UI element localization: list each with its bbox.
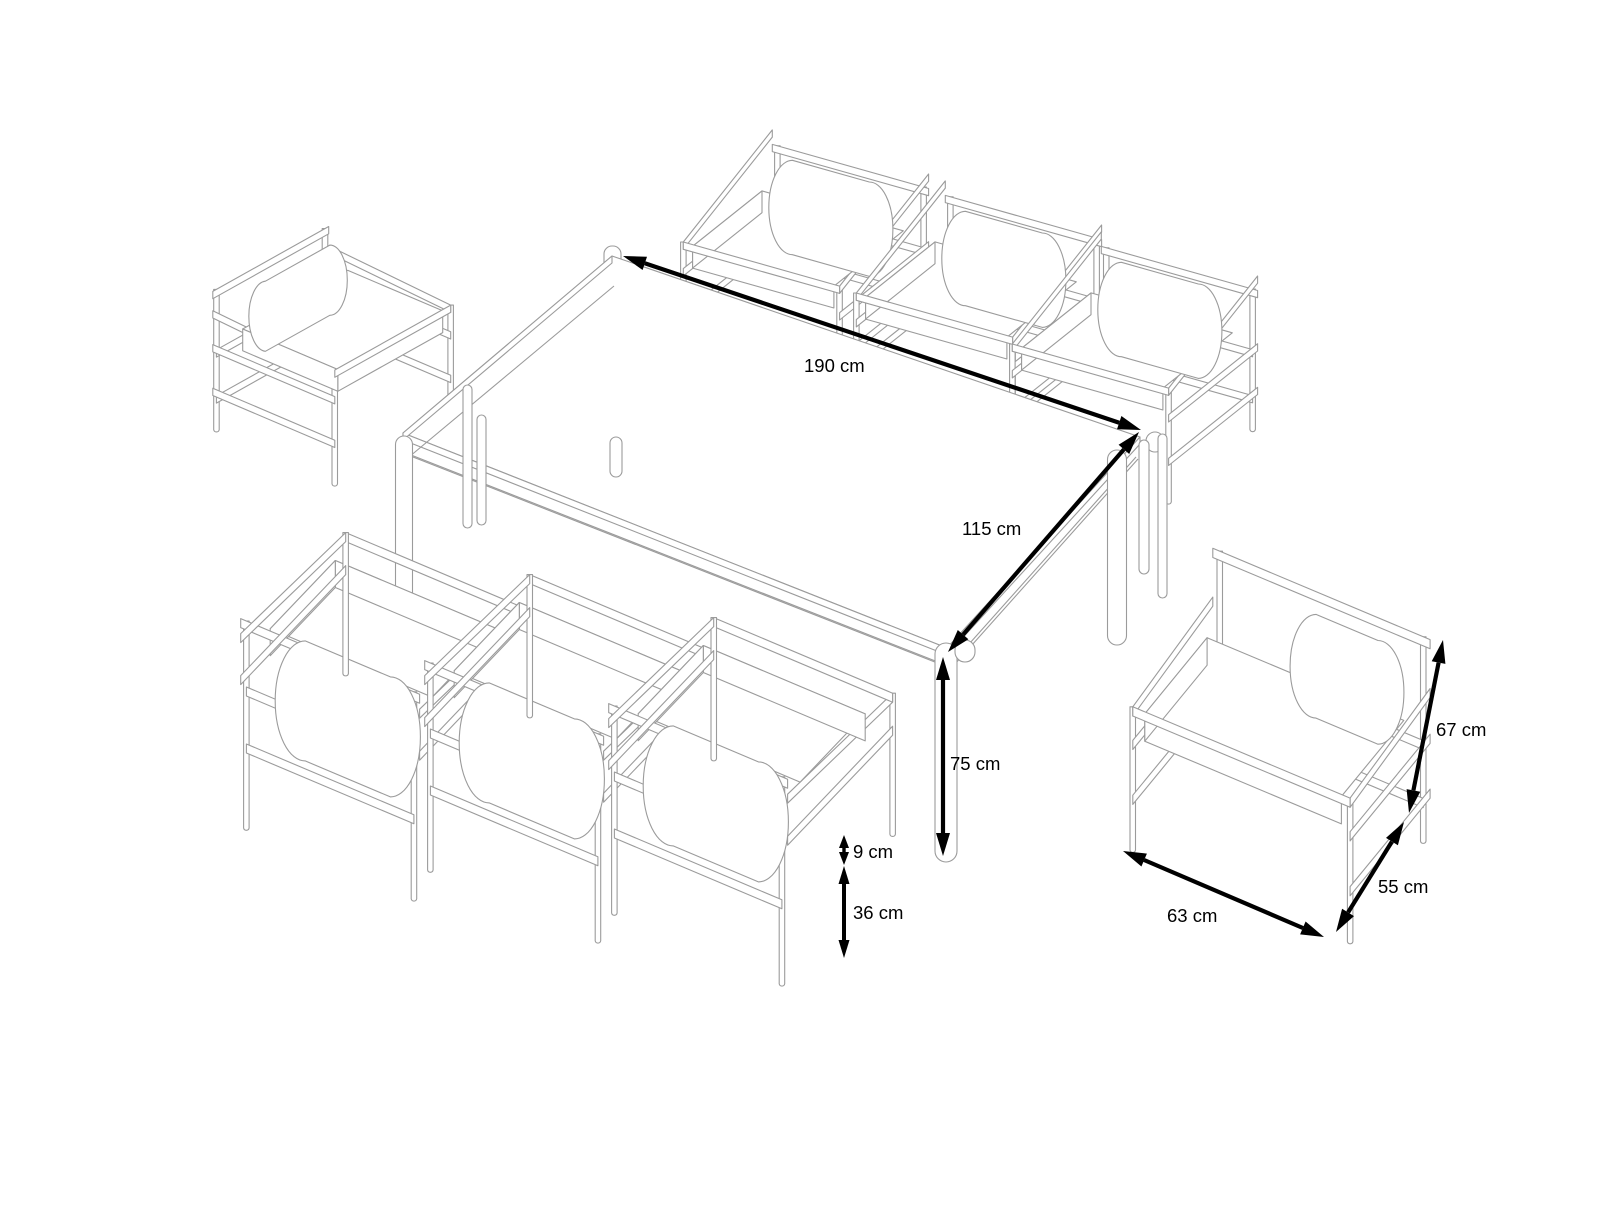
svg-text:55 cm: 55 cm [1378, 876, 1428, 897]
svg-text:9 cm: 9 cm [853, 841, 893, 862]
svg-text:67 cm: 67 cm [1436, 719, 1486, 740]
svg-text:63 cm: 63 cm [1167, 905, 1217, 926]
svg-text:75 cm: 75 cm [950, 753, 1000, 774]
svg-text:36 cm: 36 cm [853, 902, 903, 923]
svg-text:190 cm: 190 cm [804, 355, 865, 376]
svg-text:115 cm: 115 cm [962, 518, 1021, 539]
